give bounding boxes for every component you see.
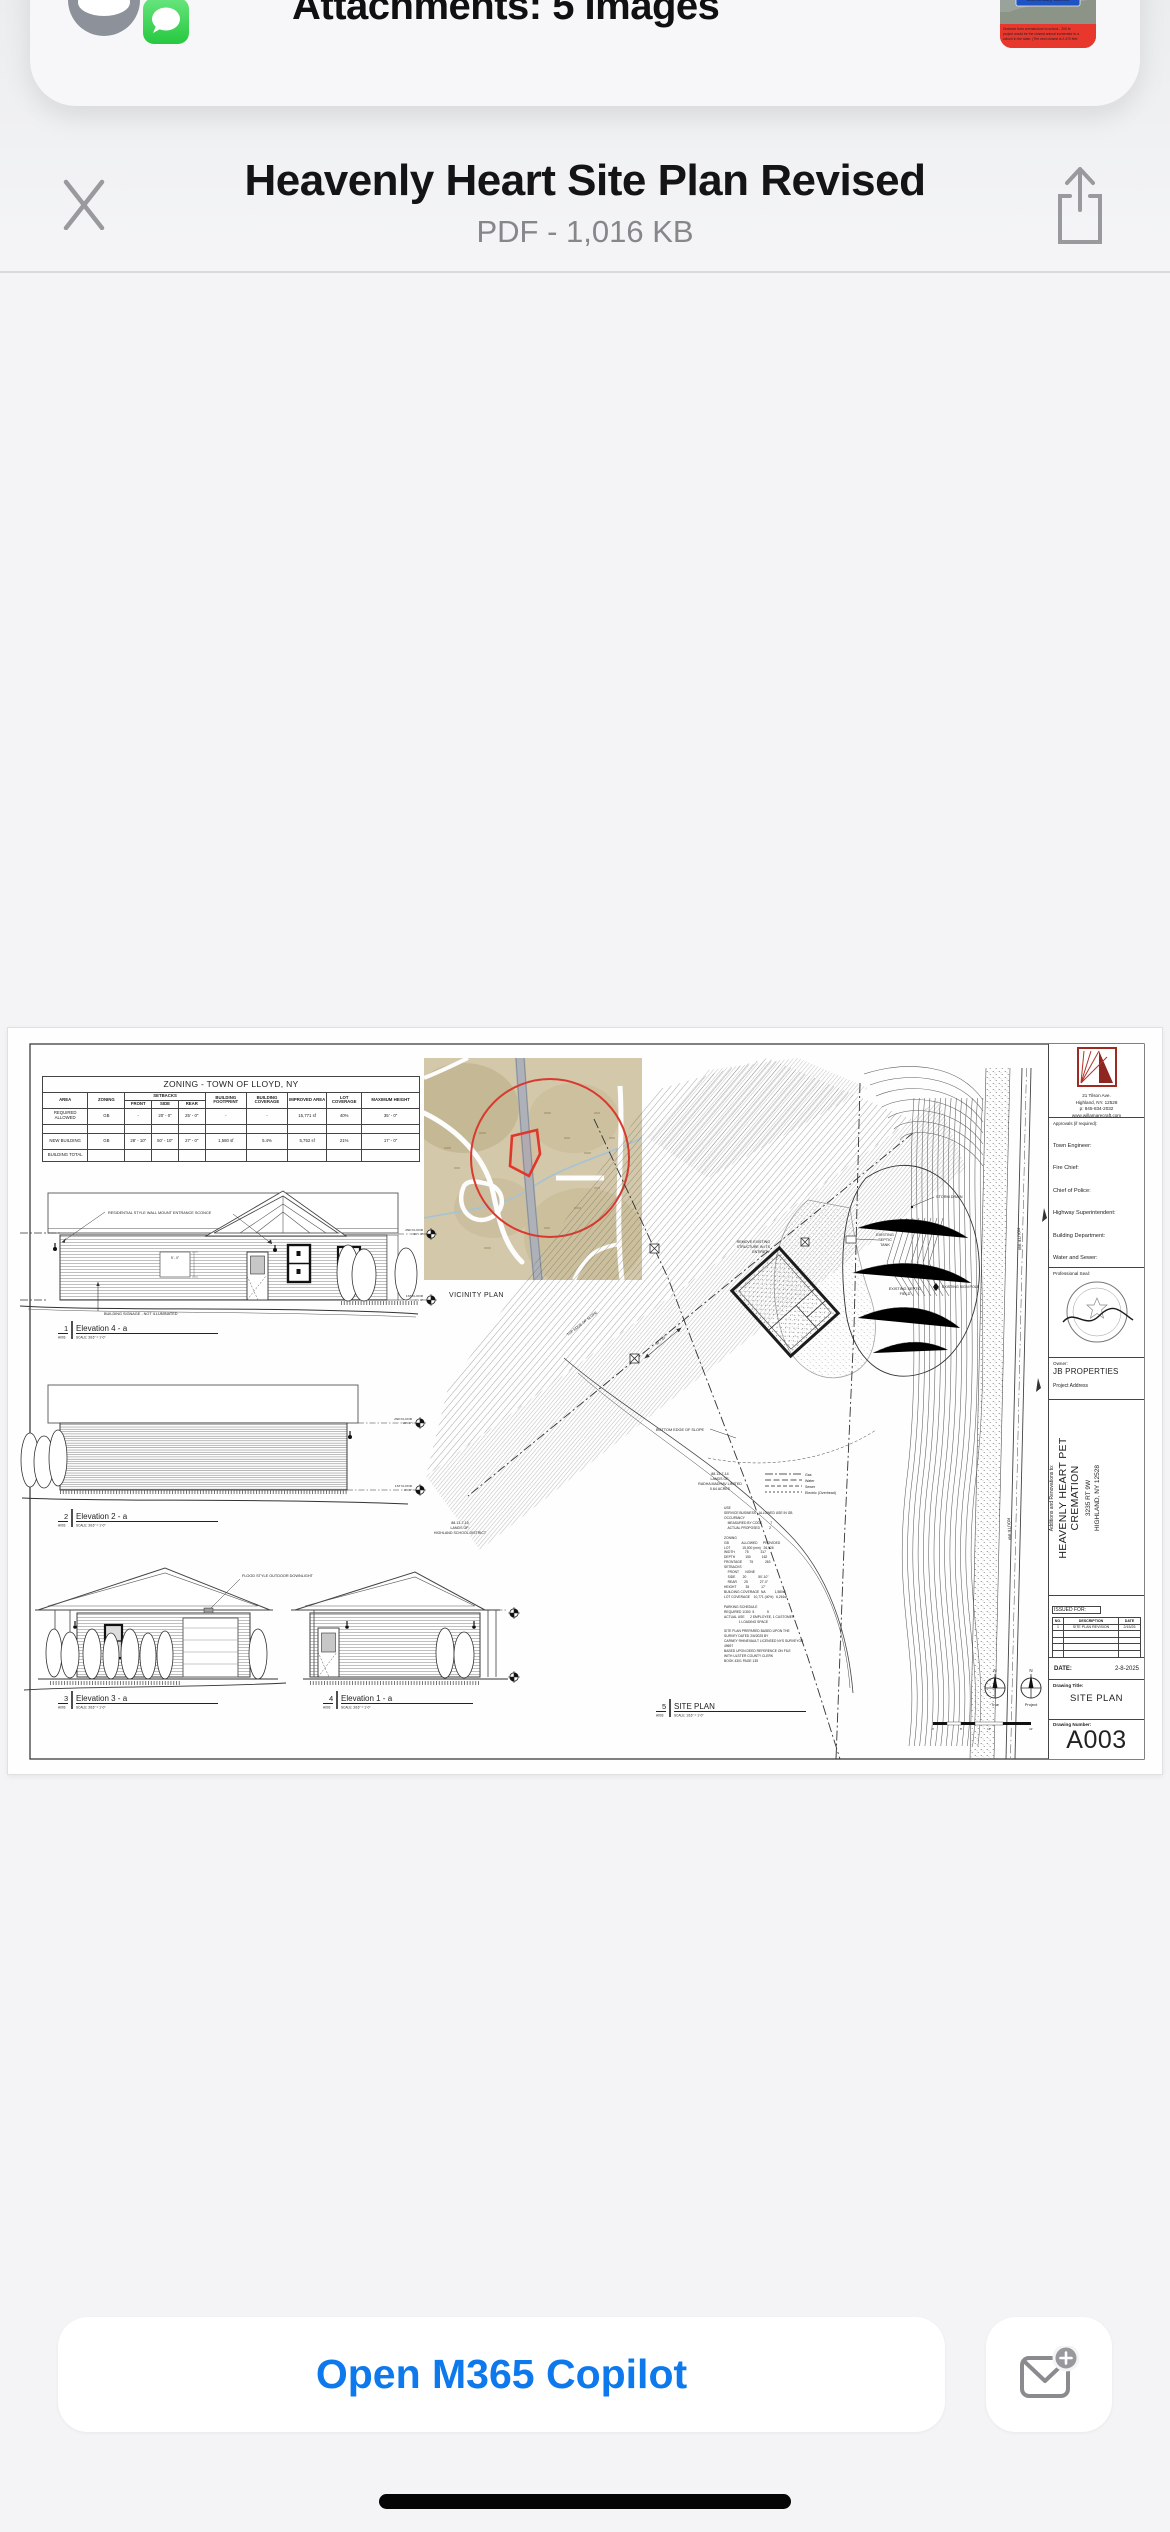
elevation-2a: 2ND FLOOR 10' - 0" 1ST FLOOR 0' - 0": [21, 1385, 426, 1504]
svg-text:N: N: [1029, 1668, 1032, 1673]
project-name-section: Additions and Renovations to: HEAVENLY H…: [1049, 1400, 1144, 1596]
svg-text:ENTIRETY: ENTIRETY: [752, 1250, 770, 1254]
svg-text:0': 0': [932, 1727, 935, 1731]
svg-text:1: 1: [64, 1324, 68, 1333]
drawing-title-section: Drawing Title: SITE PLAN: [1049, 1680, 1144, 1720]
svg-text:Electric (Overhead): Electric (Overhead): [805, 1491, 836, 1495]
envelope-plus-icon: [1018, 2346, 1080, 2404]
svg-text:N: N: [993, 1668, 996, 1673]
svg-text:10' - 0": 10' - 0": [402, 1421, 412, 1425]
north-arrow-project: N Project: [1021, 1668, 1041, 1707]
svg-text:SCALE: 3/16" = 1'-0": SCALE: 3/16" = 1'-0": [76, 1524, 106, 1528]
svg-text:0' - 0": 0' - 0": [415, 1298, 423, 1302]
svg-text:0.64 ACRES: 0.64 ACRES: [710, 1487, 731, 1491]
add-to-mail-button[interactable]: [986, 2317, 1112, 2432]
document-title: Heavenly Heart Site Plan Revised: [0, 156, 1170, 206]
label-signage: BUILDING SIGNAGE - NOT ILLUMINATED: [104, 1312, 178, 1316]
svg-text:LANDS OF:: LANDS OF:: [711, 1477, 730, 1481]
elevation-1a: [291, 1572, 520, 1683]
svg-text:school in the state. (The next: school in the state. (The next closest i…: [1003, 37, 1078, 41]
svg-text:EXISTING: EXISTING: [876, 1233, 894, 1237]
svg-text:2: 2: [64, 1512, 68, 1521]
date-row: DATE: 2-8-2025: [1049, 1658, 1144, 1680]
svg-text:8': 8': [960, 1727, 963, 1731]
owner-section: Owner: JB PROPERTIES Project Address: [1049, 1358, 1144, 1400]
svg-text:ROUTE 9W: ROUTE 9W: [1006, 1518, 1013, 1540]
site-plan-notes: USE SERVICE BUSINESS - ALLOWED USE IN GB…: [724, 1506, 848, 1664]
svg-text:TANK: TANK: [880, 1243, 890, 1247]
svg-text:Water: Water: [805, 1479, 815, 1483]
svg-text:EXISTING SEPTIC: EXISTING SEPTIC: [889, 1287, 922, 1291]
svg-text:Project: Project: [1025, 1702, 1038, 1707]
messages-app-icon: [143, 0, 189, 44]
svg-text:A003: A003: [58, 1336, 66, 1340]
label-downlight: FLOOD STYLE OUTDOOR DOWNLIGHT: [242, 1574, 314, 1578]
route-label-2: ROUTE 9W: [1006, 1518, 1013, 1540]
svg-text:Elementary School: Elementary School: [1027, 0, 1069, 3]
svg-text:3: 3: [64, 1694, 68, 1703]
professional-seal: Professional Seal:: [1049, 1268, 1144, 1358]
svg-text:Elevation 1 - a: Elevation 1 - a: [341, 1694, 393, 1703]
label-storm-drain: STORM DRAIN: [936, 1195, 963, 1199]
svg-text:LANDS OF:: LANDS OF:: [451, 1526, 470, 1530]
vicinity-plan-label: VICINITY PLAN: [449, 1292, 504, 1299]
svg-text:Elevation 4 - a: Elevation 4 - a: [76, 1324, 128, 1333]
issued-for-section: ISSUED FOR: NO.DESCRIPTIONDATE1SITE PLAN…: [1049, 1596, 1144, 1658]
elevation-4a: 5' - 0" RESIDENTIAL STYLE WALL MOUNT ENT…: [20, 1191, 437, 1317]
svg-text:Gas: Gas: [805, 1473, 812, 1477]
svg-text:Elevation 2 - a: Elevation 2 - a: [76, 1512, 128, 1521]
svg-text:FIELD: FIELD: [900, 1292, 911, 1296]
svg-text:RADHA MADHAV LIMITED: RADHA MADHAV LIMITED: [698, 1482, 742, 1486]
svg-text:A003: A003: [58, 1706, 66, 1710]
svg-text:SCALE: 3/16" = 1'-0": SCALE: 3/16" = 1'-0": [76, 1706, 106, 1710]
svg-text:Elevation 3 - a: Elevation 3 - a: [76, 1694, 128, 1703]
svg-text:A003: A003: [58, 1524, 66, 1528]
avatar: [68, 0, 140, 36]
svg-text:88.13-7-14: 88.13-7-14: [711, 1472, 728, 1476]
elevation-4a-title: 1 Elevation 4 - a A003 SCALE: 3/16" = 1'…: [58, 1321, 218, 1340]
drawing-number-section: Drawing Number: A003: [1049, 1720, 1144, 1758]
svg-text:10' - 0": 10' - 0": [413, 1232, 423, 1236]
share-icon[interactable]: [1050, 164, 1110, 248]
svg-text:STRUCTURE IN ITS: STRUCTURE IN ITS: [737, 1245, 771, 1249]
svg-text:0' - 0": 0' - 0": [404, 1488, 412, 1492]
attachment-card[interactable]: Attachments: 5 Images Highland Elementar…: [30, 0, 1140, 106]
home-indicator[interactable]: [379, 2494, 791, 2509]
svg-text:SEPTIC: SEPTIC: [878, 1238, 892, 1242]
svg-text:HIGHLAND SCHOOL DISTRICT: HIGHLAND SCHOOL DISTRICT: [434, 1531, 487, 1535]
svg-text:True: True: [991, 1702, 1000, 1707]
svg-text:32': 32': [1029, 1727, 1033, 1731]
svg-text:SCALE: 3/16" = 1'-0": SCALE: 3/16" = 1'-0": [76, 1336, 106, 1340]
architect-logo: 21 Tilson Ave. Highland, NY. 12528 p: 84…: [1049, 1044, 1144, 1118]
architect-address: 21 Tilson Ave. Highland, NY. 12528 p: 84…: [1049, 1093, 1144, 1118]
open-copilot-button[interactable]: Open M365 Copilot: [58, 2317, 945, 2432]
svg-text:A003: A003: [656, 1714, 664, 1718]
elevation-2a-title: 2 Elevation 2 - a A003 SCALE: 3/16" = 1'…: [58, 1509, 218, 1528]
svg-text:EXISTING SIGN POLE: EXISTING SIGN POLE: [942, 1285, 980, 1289]
zoning-table: ZONING - TOWN OF LLOYD, NYAREAZONINGSETB…: [42, 1076, 420, 1162]
svg-text:88.13-7-15: 88.13-7-15: [451, 1521, 468, 1525]
svg-text:5: 5: [662, 1702, 666, 1711]
attachment-thumbnail[interactable]: Highland Elementary School Distance from…: [1000, 0, 1096, 48]
approvals-section: Approvals (if required): Town Engineer: …: [1049, 1118, 1144, 1268]
svg-text:16': 16': [987, 1727, 991, 1731]
svg-text:4: 4: [329, 1694, 333, 1703]
elevation-1a-title: 4 Elevation 1 - a A003 SCALE: 3/16" = 1'…: [323, 1691, 473, 1710]
svg-text:project would be the closest a: project would be the closest animal inci…: [1003, 32, 1079, 36]
svg-text:5' - 0": 5' - 0": [171, 1256, 179, 1260]
label-bottom-edge: BOTTOM EDGE OF SLOPE: [656, 1428, 704, 1432]
svg-text:ROUTE 9W: ROUTE 9W: [1016, 1228, 1023, 1250]
svg-text:SCALE: 1/16" = 1'-0": SCALE: 1/16" = 1'-0": [674, 1714, 704, 1718]
header-divider: [0, 271, 1170, 273]
attachments-title: Attachments: 5 Images: [292, 0, 719, 29]
svg-text:REMOVE EXISTING: REMOVE EXISTING: [737, 1240, 771, 1244]
svg-text:A003: A003: [323, 1706, 331, 1710]
title-block: 21 Tilson Ave. Highland, NY. 12528 p: 84…: [1048, 1044, 1144, 1759]
svg-text:SITE PLAN: SITE PLAN: [674, 1702, 715, 1711]
label-sconce: RESIDENTIAL STYLE WALL MOUNT ENTRANCE SC…: [108, 1211, 212, 1215]
route-label: ROUTE 9W: [1016, 1228, 1023, 1250]
elevation-3a-title: 3 Elevation 3 - a A003 SCALE: 3/16" = 1'…: [58, 1691, 218, 1710]
site-plan-title: 5 SITE PLAN A003 SCALE: 1/16" = 1'-0": [656, 1699, 806, 1718]
elevation-3a: FLOOD STYLE OUTDOOR DOWNLIGHT: [24, 1568, 314, 1690]
pdf-page[interactable]: ROUTE 9W ROUTE 9W: [8, 1028, 1162, 1774]
svg-text:Sewer: Sewer: [805, 1485, 816, 1489]
svg-text:Distance from crematorium to s: Distance from crematorium to school - 20…: [1003, 27, 1071, 31]
svg-text:SCALE: 3/16" = 1'-0": SCALE: 3/16" = 1'-0": [341, 1706, 371, 1710]
document-subtitle: PDF - 1,016 KB: [0, 214, 1170, 250]
